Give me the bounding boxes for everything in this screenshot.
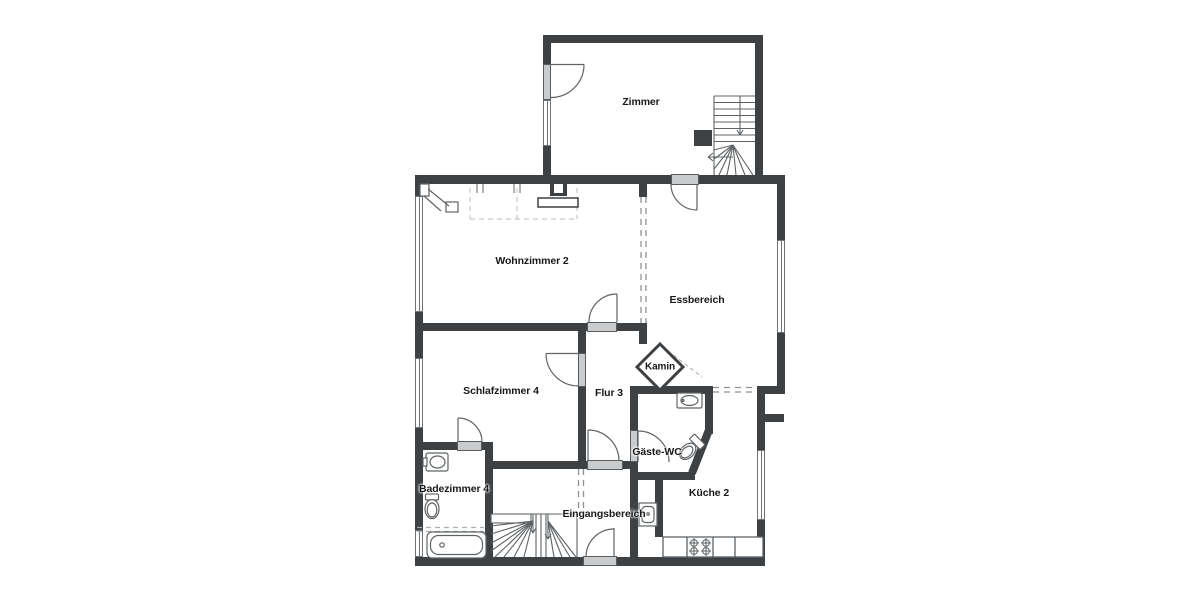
door-leaf (543, 64, 551, 100)
wall (630, 394, 638, 430)
wall-ticks (477, 184, 520, 193)
window (757, 450, 765, 520)
door-leaf (578, 353, 586, 387)
wall (415, 184, 423, 196)
wall (757, 394, 765, 450)
room-label-zimmer: Zimmer (622, 96, 659, 108)
room-label-kueche: Küche 2 (689, 487, 729, 499)
badezimmer-door-swing (458, 418, 482, 442)
bathtub (427, 532, 486, 558)
wall (757, 386, 785, 394)
room-label-essbereich: Essbereich (669, 294, 724, 306)
wc-sink (677, 393, 702, 408)
diagonal-wall (692, 430, 709, 473)
wall (705, 394, 713, 434)
wall (543, 43, 551, 64)
chimney-block (694, 130, 712, 146)
room-label-flur: Flur 3 (595, 387, 623, 399)
wall (543, 146, 551, 175)
wall (617, 557, 765, 566)
wall (415, 557, 583, 566)
room-label-gaeste-wc: Gäste-WC (632, 446, 681, 458)
wall (655, 476, 663, 537)
room-label-schlafzimmer: Schlafzimmer 4 (463, 385, 539, 397)
wall (415, 323, 587, 331)
wall (485, 461, 588, 469)
bath-screen-dashes (417, 528, 484, 532)
flur-eingang-door-swing (588, 430, 619, 461)
wall (699, 175, 785, 184)
door-sill (587, 322, 617, 332)
wall (777, 184, 785, 240)
window (543, 100, 551, 146)
room-label-eingangsbereich: Eingangsbereich (562, 508, 645, 520)
essbereich-door-swing (671, 184, 697, 210)
front-door-sill (583, 556, 617, 566)
front-door-swing (586, 528, 614, 557)
wall (485, 450, 493, 557)
stove-burners (689, 538, 711, 556)
window (415, 196, 423, 312)
wall (578, 387, 586, 461)
sideboard (538, 198, 578, 207)
zimmer-door-swing (551, 65, 584, 98)
door-sill (587, 460, 623, 470)
toilet (425, 494, 439, 519)
wall (415, 312, 423, 358)
entry-staircase (491, 514, 577, 557)
wall (415, 175, 672, 184)
wall (630, 386, 713, 394)
wall (415, 442, 457, 450)
upper-staircase (708, 96, 755, 175)
wall (482, 442, 493, 450)
wall (578, 331, 586, 353)
duct-core (554, 184, 563, 193)
wall (543, 35, 763, 43)
door-sill (671, 174, 699, 185)
wall (757, 520, 765, 557)
window (415, 358, 423, 428)
wall (639, 184, 647, 197)
door-sill (457, 441, 482, 451)
wall (755, 43, 763, 175)
room-label-kamin: Kamin (645, 362, 675, 373)
wall (617, 323, 647, 331)
exterior-stub (760, 414, 784, 422)
corner-wedge (420, 184, 458, 212)
kitchen-counter (663, 537, 763, 557)
room-label-badezimmer: Badezimmer 4 (419, 483, 489, 495)
window (777, 240, 785, 333)
wall (777, 333, 785, 392)
bathroom-sink (423, 453, 448, 471)
wohnzimmer-flur-door-swing (589, 294, 617, 322)
window (415, 530, 423, 557)
wall (638, 472, 695, 480)
schlafzimmer-door-swing (546, 354, 578, 387)
room-label-wohnzimmer: Wohnzimmer 2 (495, 255, 568, 267)
floorplan-canvas: Zimmer Wohnzimmer 2 Essbereich Kamin Sch… (0, 0, 1200, 600)
